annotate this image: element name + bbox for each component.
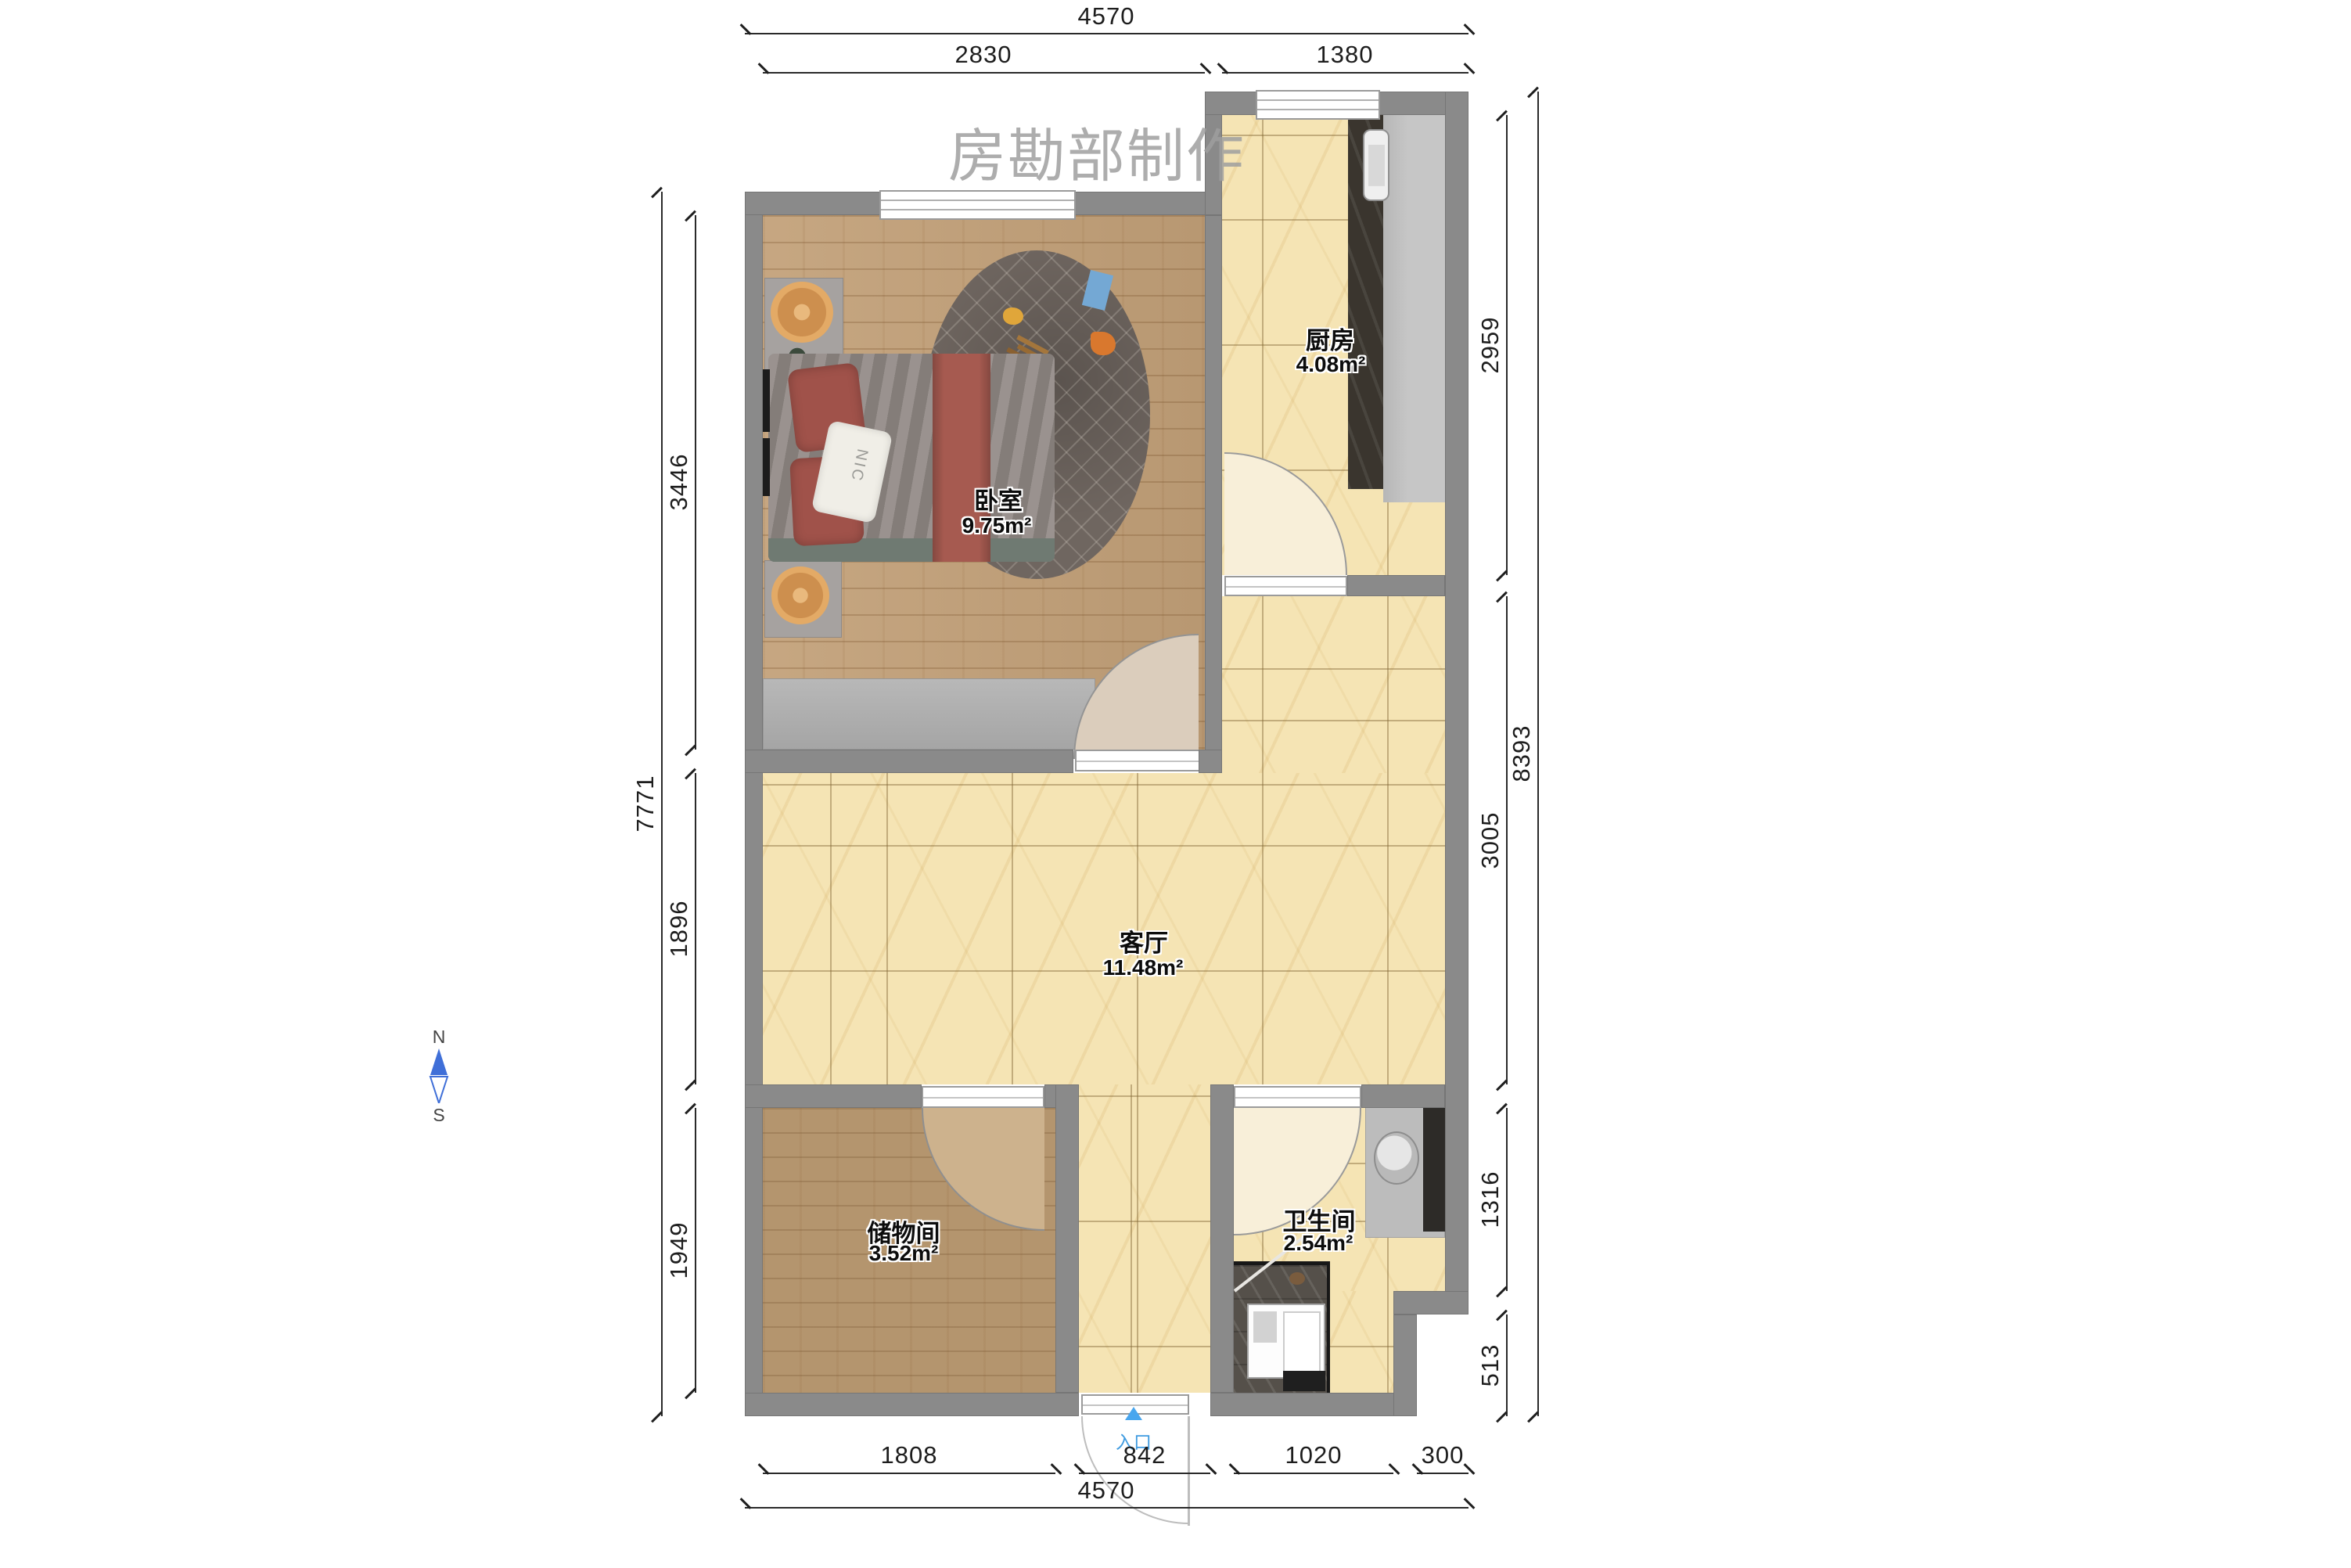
dim-bottom-storage-line bbox=[763, 1473, 1055, 1474]
dim-right-step-line bbox=[1506, 1314, 1508, 1416]
wall-bottom-right bbox=[1210, 1393, 1417, 1416]
tick bbox=[685, 1080, 696, 1091]
watermark-title: 房勘部制作 bbox=[948, 110, 1246, 193]
dim-left-total-line bbox=[661, 192, 663, 1416]
washing-machine bbox=[1247, 1304, 1325, 1379]
dim-bottom-bathroom-line bbox=[1234, 1473, 1393, 1474]
tick bbox=[685, 745, 696, 757]
pillow-text: NIC bbox=[847, 447, 872, 484]
dim-top-bedroom: 2830 bbox=[929, 41, 1038, 68]
dim-bottom-step-line bbox=[1417, 1473, 1468, 1474]
compass-north-label: N bbox=[423, 1027, 455, 1048]
living-floor-upper bbox=[1222, 596, 1445, 773]
bedroom-window bbox=[879, 190, 1076, 220]
wall-bedroom-bottom-right bbox=[1199, 750, 1222, 773]
shower-handle bbox=[1289, 1272, 1305, 1285]
wall-kitchen-bottom bbox=[1347, 575, 1445, 596]
wall-bottom-left bbox=[745, 1393, 1079, 1416]
washer-mat bbox=[1283, 1371, 1325, 1391]
bathroom-door-leaf bbox=[1234, 1086, 1361, 1108]
wardrobe bbox=[763, 678, 1095, 750]
lamp-top bbox=[771, 282, 833, 343]
rug-toy-yellow bbox=[1003, 307, 1023, 325]
headboard-bar-1 bbox=[762, 369, 770, 432]
kitchen-label: 厨房 bbox=[1228, 321, 1432, 356]
dim-left-storage-line bbox=[695, 1108, 696, 1393]
kitchen-area: 4.08m² bbox=[1229, 352, 1433, 377]
living-label: 客厅 bbox=[1042, 923, 1246, 958]
wall-mid-bath-right bbox=[1361, 1084, 1445, 1108]
wall-right bbox=[1445, 92, 1468, 1314]
dim-right-bathroom-line bbox=[1506, 1108, 1508, 1291]
dim-top-bedroom-line bbox=[763, 72, 1205, 74]
dim-right-living: 3005 bbox=[1477, 786, 1504, 895]
dim-top-kitchen: 1380 bbox=[1290, 41, 1400, 68]
dim-left-living-line bbox=[695, 773, 696, 1084]
tick bbox=[651, 1412, 663, 1423]
dim-top-total: 4570 bbox=[1051, 3, 1161, 30]
wall-step-horizontal bbox=[1393, 1291, 1468, 1314]
dim-bottom-entry-line bbox=[1079, 1473, 1210, 1474]
wall-bedroom-kitchen-divider bbox=[1205, 215, 1222, 773]
dim-left-living: 1896 bbox=[666, 874, 692, 984]
storage-door-leaf bbox=[922, 1086, 1044, 1108]
entry-door-open-leaf bbox=[1188, 1416, 1190, 1526]
storage-area: 3.52m² bbox=[802, 1241, 1005, 1266]
tick bbox=[1527, 1412, 1539, 1423]
bathroom-area: 2.54m² bbox=[1217, 1231, 1420, 1256]
vanity-dark-panel bbox=[1423, 1089, 1445, 1232]
kitchen-sink bbox=[1363, 129, 1389, 201]
living-area: 11.48m² bbox=[1041, 955, 1245, 980]
wall-storage-right bbox=[1055, 1084, 1079, 1393]
dim-right-total: 8393 bbox=[1508, 699, 1535, 808]
dim-left-storage: 1949 bbox=[666, 1196, 692, 1305]
washer-panel bbox=[1253, 1311, 1277, 1343]
wall-step-vertical bbox=[1393, 1314, 1417, 1416]
floor-plan-canvas: NIC bbox=[0, 0, 2351, 1568]
dim-bottom-bathroom: 1020 bbox=[1259, 1442, 1368, 1469]
wall-left bbox=[745, 192, 763, 1416]
tick bbox=[1496, 570, 1508, 582]
hallway-floor bbox=[1079, 1084, 1210, 1393]
dim-right-total-line bbox=[1537, 92, 1539, 1416]
washer-door bbox=[1283, 1311, 1321, 1372]
tick bbox=[685, 1388, 696, 1400]
bedroom-area: 9.75m² bbox=[895, 513, 1098, 538]
entrance-arrow-icon bbox=[1125, 1407, 1142, 1420]
lamp-bottom bbox=[771, 566, 829, 624]
kitchen-window bbox=[1256, 90, 1380, 120]
dim-bottom-step: 300 bbox=[1388, 1442, 1497, 1469]
headboard-bar-2 bbox=[762, 438, 770, 496]
tick bbox=[1496, 1080, 1508, 1091]
dim-top-total-line bbox=[745, 33, 1468, 34]
dim-right-bathroom: 1316 bbox=[1477, 1145, 1504, 1254]
wall-mid-storage-left bbox=[745, 1084, 922, 1108]
dim-right-kitchen-line bbox=[1506, 115, 1508, 575]
tick bbox=[1496, 1286, 1508, 1298]
bedroom-label: 卧室 bbox=[897, 481, 1100, 516]
dim-bottom-total: 4570 bbox=[1051, 1477, 1161, 1504]
kitchen-counter-gray bbox=[1383, 115, 1445, 502]
dim-bottom-storage: 1808 bbox=[854, 1442, 964, 1469]
compass-needle-icon bbox=[427, 1048, 451, 1103]
dim-bottom-total-line bbox=[745, 1507, 1468, 1509]
dim-bottom-entry: 842 bbox=[1090, 1442, 1199, 1469]
dim-left-bedroom-line bbox=[695, 215, 696, 750]
dim-right-step: 513 bbox=[1477, 1311, 1504, 1420]
rug-toy-orange bbox=[1091, 332, 1116, 355]
dim-left-bedroom: 3446 bbox=[666, 427, 692, 537]
vanity-sink bbox=[1374, 1131, 1419, 1185]
dim-right-kitchen: 2959 bbox=[1477, 290, 1504, 400]
compass-south-label: S bbox=[423, 1105, 455, 1126]
bedroom-door-leaf bbox=[1075, 750, 1200, 771]
dim-left-total: 7771 bbox=[632, 749, 659, 858]
wall-bedroom-bottom-left bbox=[745, 750, 1073, 773]
kitchen-door-leaf bbox=[1224, 576, 1347, 596]
dim-top-kitchen-line bbox=[1222, 72, 1468, 74]
dim-right-living-line bbox=[1506, 596, 1508, 1084]
